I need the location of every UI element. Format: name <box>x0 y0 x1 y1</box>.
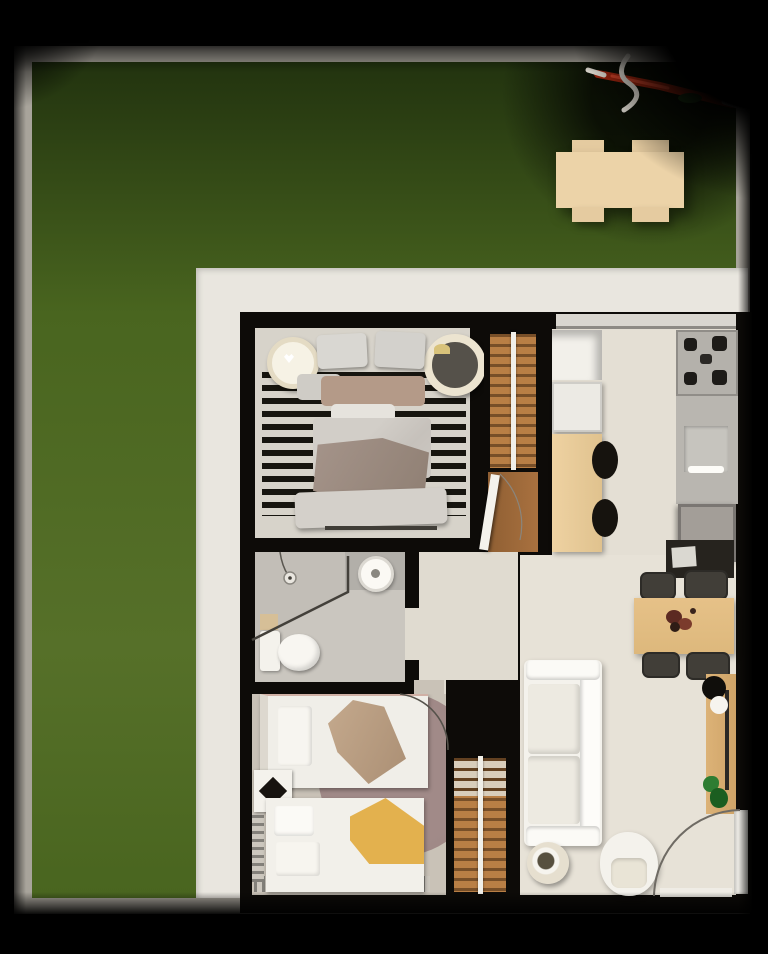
potted-plant <box>710 788 728 808</box>
open-cabinet <box>552 330 602 380</box>
floorplan-render <box>0 0 768 954</box>
burner <box>684 372 697 385</box>
master-wardrobe <box>484 328 542 474</box>
bathroom-doorway <box>405 608 419 660</box>
yellow-throw <box>350 798 424 864</box>
sofa-cushion <box>528 684 580 754</box>
fringe-rug-left <box>252 812 264 882</box>
sink-faucet <box>688 466 724 473</box>
cooktop <box>676 330 738 396</box>
centerpiece <box>670 622 680 632</box>
entry-door-leaf <box>734 810 748 894</box>
dining-chair <box>640 572 676 600</box>
bath-wood-mat <box>260 614 278 630</box>
bed-pillow <box>274 806 314 836</box>
centerpiece <box>678 618 692 630</box>
entry-threshold <box>660 888 732 897</box>
bed-foot-blanket <box>294 487 447 528</box>
sofa-armrest <box>526 826 600 846</box>
toilet-bowl <box>278 634 320 671</box>
master-bed <box>313 330 431 520</box>
picnic-table <box>556 152 684 208</box>
bed-pillow <box>276 842 320 876</box>
centerpiece <box>690 608 696 614</box>
bath-basin <box>358 556 394 592</box>
kitchen-counter <box>676 396 738 504</box>
wardrobe-rail <box>478 756 483 894</box>
burner <box>712 370 727 385</box>
hallway-floor <box>419 552 518 680</box>
round-nightstand-right <box>424 334 486 396</box>
kids-bedroom <box>252 694 446 895</box>
bar-stool <box>592 499 618 537</box>
sofa <box>524 660 602 846</box>
basin-drain <box>371 569 380 578</box>
kitchen-window-band <box>556 314 736 329</box>
tan-throw <box>328 700 406 784</box>
wall-console <box>325 526 437 530</box>
bed-pillow <box>316 333 368 370</box>
bed-pillow <box>278 706 312 766</box>
burner <box>712 336 727 351</box>
bed-tan-band <box>321 376 425 406</box>
cooktop-knob <box>700 354 712 364</box>
bedroom2-doorway <box>414 680 444 694</box>
single-bed-bottom <box>266 798 424 892</box>
dining-chair <box>642 652 680 678</box>
wardrobe-rail <box>511 332 516 470</box>
bed-pillow <box>374 331 426 370</box>
tv-decor-box <box>671 546 696 568</box>
sofa-cushion <box>528 756 580 824</box>
dining-table <box>634 598 734 654</box>
sofa-backrest <box>580 662 600 844</box>
decor-heart <box>284 354 294 363</box>
armchair <box>600 832 658 896</box>
dining-chair <box>684 570 728 600</box>
decor-sphere-white <box>710 696 728 714</box>
picnic-seat <box>632 207 669 222</box>
round-side-table <box>527 842 569 884</box>
picnic-seat <box>572 207 604 222</box>
bar-stool <box>592 441 618 479</box>
burner <box>684 338 697 351</box>
hall-wardrobe <box>448 752 512 898</box>
decor-gold-arc <box>434 344 450 354</box>
sofa-armrest <box>526 660 600 680</box>
armchair-cushion <box>611 858 647 888</box>
white-cabinet <box>552 382 602 432</box>
toilet-tank <box>260 631 280 671</box>
